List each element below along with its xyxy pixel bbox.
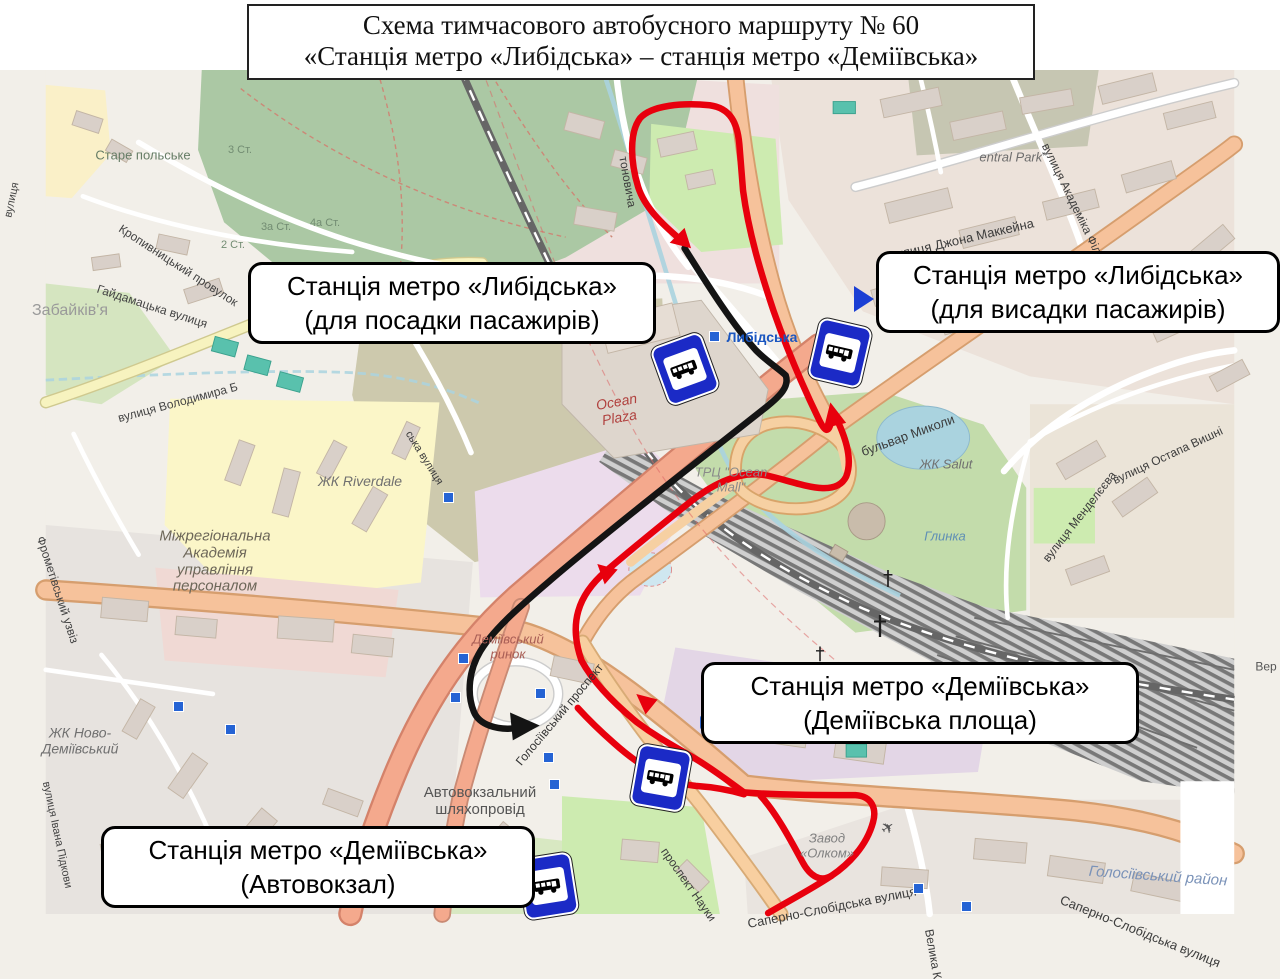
- callout-line2: (Деміївська площа): [706, 703, 1134, 737]
- callout-lybidska-boarding: Станція метро «Либідська» (для посадки п…: [248, 262, 656, 344]
- bus-stop-sign: [629, 743, 693, 813]
- callout-line1: Станція метро «Либідська»: [253, 269, 651, 303]
- metro-entrance-icon: [543, 752, 554, 763]
- bus-icon: [823, 340, 857, 366]
- place-label: Вер: [1255, 660, 1276, 673]
- mall-label: ТРЦ "Ocean Mall": [695, 465, 768, 494]
- place-label: Автовокзальний шляхопровід: [424, 785, 536, 819]
- metro-entrance-icon: [458, 653, 469, 664]
- callout-demiivska-bus-station: Станція метро «Деміївська» (Автовокзал): [101, 826, 535, 908]
- map-edge: [1180, 781, 1234, 914]
- place-label: ЖК Ново- Деміївський: [42, 725, 119, 756]
- metro-entrance-icon: [535, 688, 546, 699]
- place-label: ЖК Salut: [920, 458, 973, 473]
- church-cross-icon: †: [873, 611, 887, 642]
- metro-entrance-icon: [961, 901, 972, 912]
- place-label: ЖК Riverdale: [318, 474, 402, 490]
- metro-station-label: Либідська: [727, 330, 798, 346]
- callout-line1: Станція метро «Деміївська»: [106, 833, 530, 867]
- callout-line2: (для висадки пасажирів): [881, 292, 1275, 326]
- bus-stop-sign-panel: [640, 758, 681, 798]
- place-label: entral Park”: [979, 151, 1046, 166]
- scheme-title-line1: Схема тимчасового автобусного маршруту №…: [255, 10, 1027, 41]
- metro-entrance-icon: [443, 492, 454, 503]
- place-label: Завод «Олком»: [800, 831, 854, 860]
- bus-icon: [532, 874, 565, 898]
- bus-icon: [644, 766, 677, 791]
- metro-entrance-icon: [709, 331, 720, 342]
- cemetery-name: Старе польське: [95, 149, 190, 164]
- metro-entrance-icon: [913, 883, 924, 894]
- metro-entrance-icon: [225, 724, 236, 735]
- callout-demiivska-square: Станція метро «Деміївська» (Деміївська п…: [701, 662, 1139, 744]
- cemetery-section: 3 Ст.: [228, 144, 252, 156]
- callout-line2: (Автовокзал): [106, 867, 530, 901]
- church-cross-icon: †: [883, 566, 893, 590]
- cemetery-section: 3а Ст.: [261, 221, 291, 233]
- place-label: Забайків'я: [32, 302, 108, 320]
- scheme-title-line2: «Станція метро «Либідська» – станція мет…: [255, 41, 1027, 72]
- cemetery-section: 4а Ст.: [310, 217, 340, 229]
- callout-line1: Станція метро «Либідська»: [881, 258, 1275, 292]
- metro-entrance-icon: [173, 701, 184, 712]
- route-scheme-page: Схема тимчасового автобусного маршруту №…: [0, 0, 1280, 979]
- callout-line2: (для посадки пасажирів): [253, 303, 651, 337]
- bus-icon: [667, 354, 702, 383]
- scheme-title: Схема тимчасового автобусного маршруту №…: [247, 4, 1035, 80]
- callout-pointer-icon: [854, 286, 874, 312]
- water-label: Глинка: [924, 530, 966, 545]
- metro-entrance-icon: [549, 779, 560, 790]
- place-label: Міжрегіональна Академія управління персо…: [159, 528, 270, 595]
- place-label: Деміївський ринок: [472, 632, 543, 661]
- bus-stop-sign-panel: [662, 347, 707, 391]
- cemetery-section: 2 Ст.: [221, 239, 245, 251]
- callout-lybidska-alighting: Станція метро «Либідська» (для висадки п…: [876, 251, 1280, 333]
- bus-stop-sign-panel: [819, 332, 862, 373]
- metro-entrance-icon: [450, 692, 461, 703]
- callout-line1: Станція метро «Деміївська»: [706, 669, 1134, 703]
